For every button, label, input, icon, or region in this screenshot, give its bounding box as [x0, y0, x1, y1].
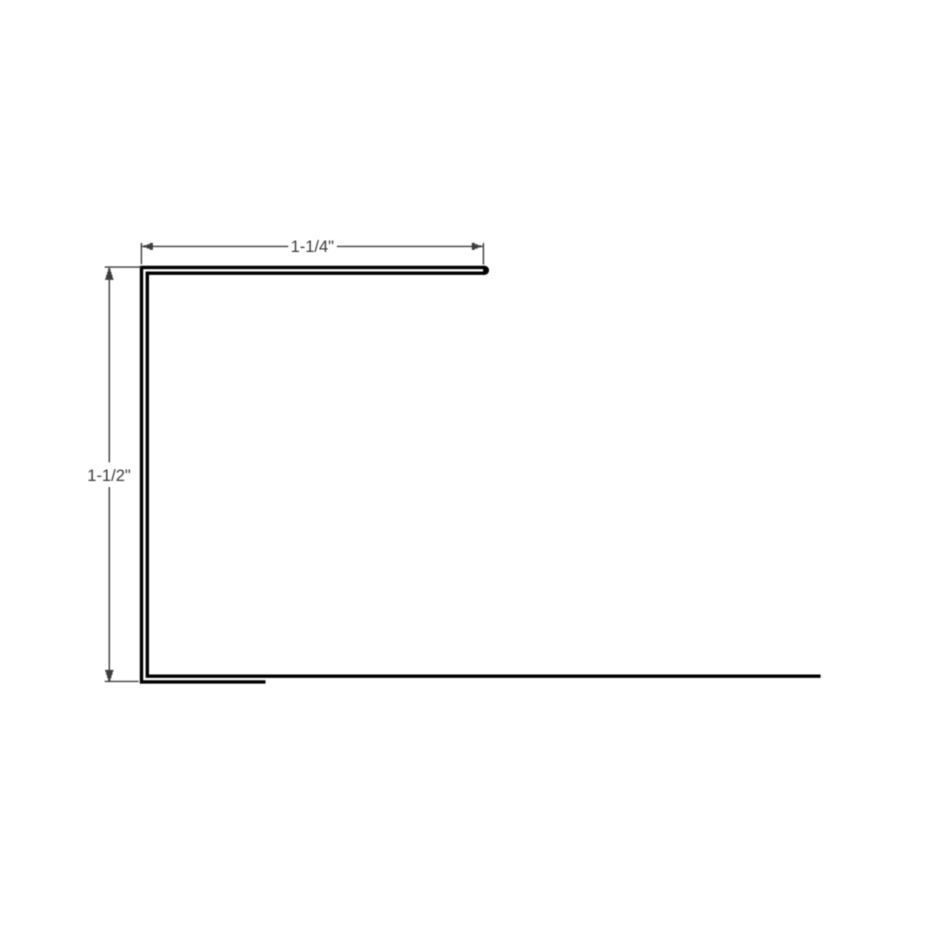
svg-text:1-1/4": 1-1/4"	[291, 238, 335, 256]
svg-text:1-1/2": 1-1/2"	[87, 467, 131, 485]
